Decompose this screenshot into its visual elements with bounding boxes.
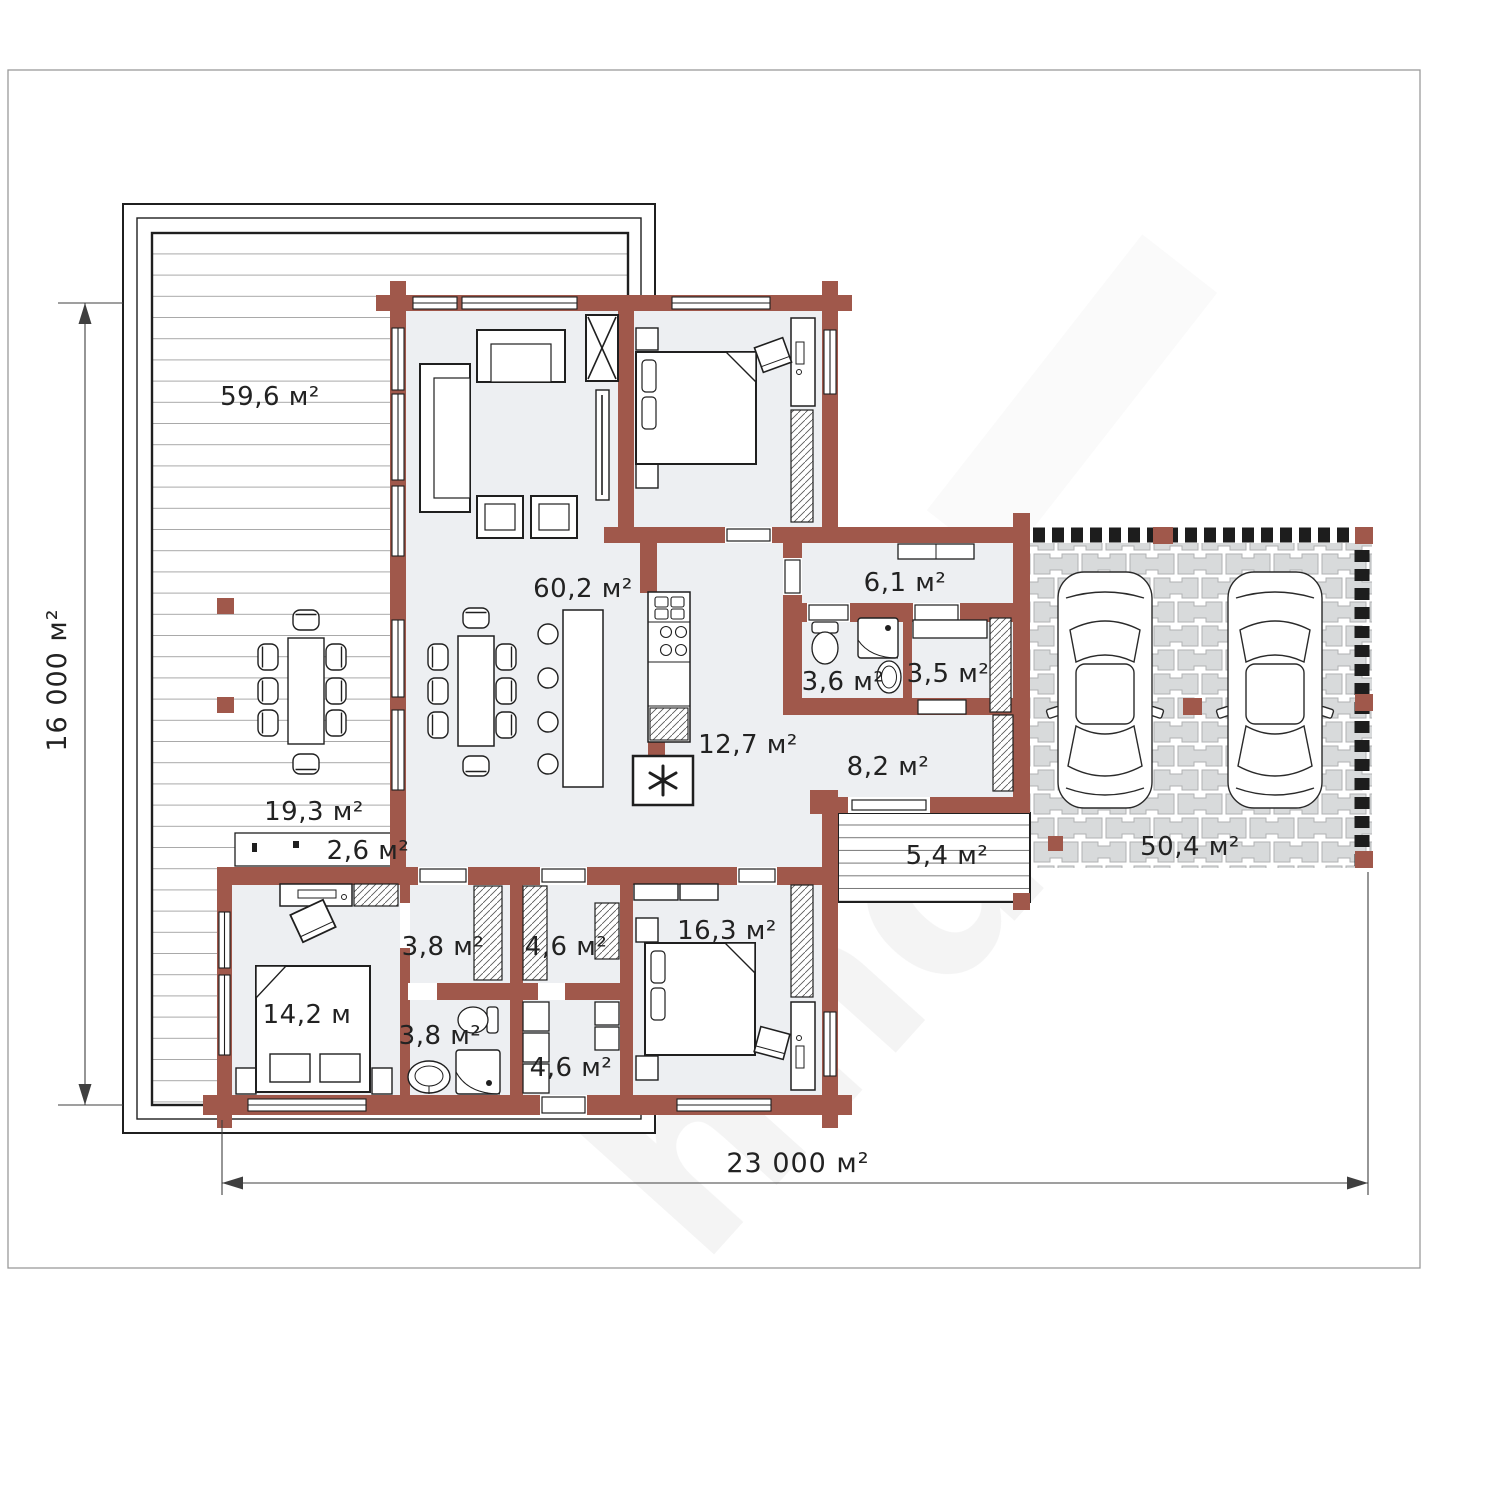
nightstand — [636, 328, 658, 350]
floor-plan-drawing: hndi — [0, 0, 1500, 1500]
chair — [293, 754, 319, 774]
deck-column — [217, 598, 234, 614]
living-area-label: 60,2 м² — [533, 574, 633, 604]
chair — [258, 644, 278, 670]
shelf — [354, 884, 398, 906]
outdoor-table — [288, 638, 324, 744]
wc-area-label: 3,6 м² — [802, 667, 885, 697]
chair — [496, 644, 516, 670]
shelf — [595, 1002, 619, 1025]
hallway-82 — [993, 715, 1013, 791]
chair — [496, 678, 516, 704]
entry-hall — [898, 544, 974, 559]
bar-stool — [538, 712, 558, 732]
wardrobe-area-label: 4,6 м² — [525, 932, 608, 962]
terrace-area-label: 19,3 м² — [264, 797, 364, 827]
closet-area-label: 3,5 м² — [907, 659, 990, 689]
shelf — [523, 1002, 549, 1031]
chair — [326, 644, 346, 670]
keyboard — [796, 342, 804, 364]
wardrobe — [993, 715, 1013, 791]
chair — [428, 678, 448, 704]
corridor-area-label: 12,7 м² — [698, 730, 798, 760]
wardrobe — [791, 885, 813, 997]
tv-stand — [596, 390, 609, 500]
door — [420, 869, 466, 882]
entrance-door — [852, 800, 926, 810]
nightstand — [636, 462, 658, 488]
bedroom-right-area-label: 16,3 м² — [677, 916, 777, 946]
wardrobe — [990, 618, 1011, 712]
chair — [258, 678, 278, 704]
height-dimension-label: 16 000 м² — [42, 608, 73, 751]
door — [785, 560, 800, 593]
toilet — [812, 622, 838, 664]
nightstand — [636, 1056, 658, 1080]
hallway-area-label: 8,2 м² — [847, 752, 930, 782]
bar-stool — [538, 668, 558, 688]
door-gap — [408, 983, 437, 1000]
chair — [258, 710, 278, 736]
door — [727, 529, 770, 541]
pillow — [642, 360, 656, 392]
door — [542, 869, 585, 882]
width-dimension-label: 23 000 м² — [726, 1148, 869, 1179]
porch-area-label: 5,4 м² — [906, 841, 989, 871]
keyboard — [796, 1046, 804, 1068]
mouse — [797, 370, 802, 375]
mouse — [797, 1036, 802, 1041]
nightstand — [372, 1068, 392, 1094]
carport-area-label: 50,4 м² — [1140, 832, 1240, 862]
door-gap — [538, 983, 565, 1000]
carport — [1030, 527, 1373, 868]
pillow — [642, 397, 656, 429]
bench — [270, 1054, 310, 1082]
entry-hall-area-label: 6,1 м² — [864, 568, 947, 598]
laundry-area-label: 4,6 м² — [530, 1053, 613, 1083]
chair — [428, 644, 448, 670]
dishwasher — [650, 708, 688, 740]
shelf — [913, 620, 987, 638]
planter-area-label: 2,6 м² — [327, 836, 410, 866]
wardrobe — [791, 410, 813, 522]
fireplace — [586, 315, 618, 381]
chair — [293, 610, 319, 630]
pillow — [651, 988, 665, 1020]
nightstand — [236, 1068, 256, 1094]
door — [915, 605, 958, 620]
door — [542, 1097, 585, 1113]
door — [809, 605, 848, 620]
wood-stove — [633, 756, 693, 805]
deck-area-label: 59,6 м² — [220, 382, 320, 412]
threshold — [918, 700, 966, 714]
bathroom-area-label: 3,8 м² — [399, 1021, 482, 1051]
sink — [408, 1061, 450, 1094]
storage-area-label: 3,8 м² — [402, 932, 485, 962]
car — [1046, 572, 1164, 808]
bar-stool — [538, 754, 558, 774]
shower — [858, 618, 898, 658]
chair — [326, 710, 346, 736]
nightstand — [636, 918, 658, 942]
car — [1216, 572, 1334, 808]
chair — [326, 678, 346, 704]
shelf — [595, 1027, 619, 1050]
dining-table — [458, 636, 494, 746]
bench — [320, 1054, 360, 1082]
floor-plan-page: hndi — [0, 0, 1500, 1500]
cabinet — [680, 884, 718, 900]
deck-column — [217, 697, 234, 713]
shower — [456, 1050, 500, 1094]
bedroom-left-area-label: 14,2 м — [263, 1000, 352, 1030]
cabinet — [634, 884, 678, 900]
chair — [463, 608, 489, 628]
chair — [496, 712, 516, 738]
mouse — [342, 895, 347, 900]
bar-stool — [538, 624, 558, 644]
chair — [463, 756, 489, 776]
keyboard — [298, 890, 336, 898]
chair — [428, 712, 448, 738]
door — [739, 869, 775, 882]
pillow — [651, 951, 665, 983]
